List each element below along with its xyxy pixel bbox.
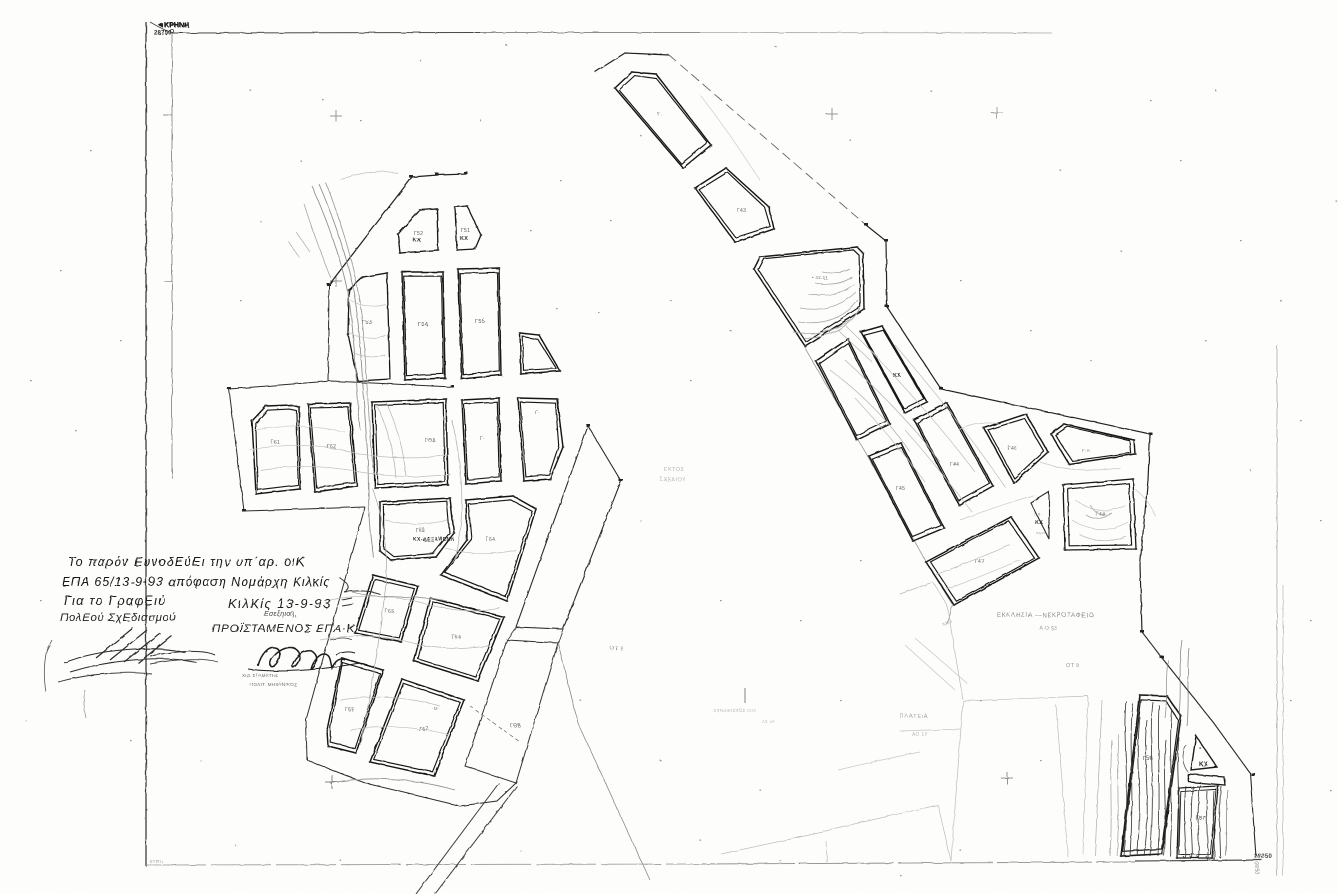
svg-text:Α Ο 93: Α Ο 93 bbox=[1040, 626, 1057, 632]
svg-text:Γ51: Γ51 bbox=[461, 228, 470, 234]
svg-text:Γ60: Γ60 bbox=[416, 528, 425, 534]
svg-text:ε≈π¹›: ε≈π¹› bbox=[150, 859, 163, 865]
svg-text:ΕΚΚΛΗΣΙΑ —ΝΕΚΡΟΤΑΦΕΙΟ: ΕΚΚΛΗΣΙΑ —ΝΕΚΡΟΤΑΦΕΙΟ bbox=[997, 613, 1094, 619]
svg-text:Γ61: Γ61 bbox=[271, 440, 280, 446]
svg-text:ΚΧ: ΚΧ bbox=[460, 236, 468, 242]
svg-text:Γ·Χ·: Γ·Χ· bbox=[1034, 512, 1043, 517]
svg-text:ΠΟΛΙΤ. ΜΗΧΑΝΙΚΟΣ: ΠΟΛΙΤ. ΜΗΧΑΝΙΚΟΣ bbox=[250, 682, 297, 687]
svg-text:• 42.11: • 42.11 bbox=[812, 275, 828, 280]
svg-text:Γ52: Γ52 bbox=[414, 231, 423, 237]
svg-text:●: ● bbox=[1199, 746, 1201, 750]
svg-text:ΟΤ 8: ΟΤ 8 bbox=[610, 646, 623, 652]
svg-text:ΠΡΟΪΣΤΑΜΕΝΟΣ ΕΠΑ·Κ: ΠΡΟΪΣΤΑΜΕΝΟΣ ΕΠΑ·Κ bbox=[212, 623, 356, 635]
svg-text:ΟΤ 9: ΟΤ 9 bbox=[1066, 663, 1079, 669]
svg-text:ΑΣ ΙΘ: ΑΣ ΙΘ bbox=[762, 719, 775, 724]
svg-text:Εσεξηιοη,: Εσεξηιοη, bbox=[264, 611, 297, 618]
svg-text:Γ·Α·: Γ·Α· bbox=[1082, 448, 1092, 453]
svg-text:ΕΠΑ 65/13-9-93 απόφαση Νομάρχη: ΕΠΑ 65/13-9-93 απόφαση Νομάρχη Κιλκίς bbox=[62, 575, 330, 589]
svg-text:Γ·: Γ· bbox=[657, 112, 662, 118]
svg-text:ΚΧ: ΚΧ bbox=[413, 238, 421, 244]
svg-text:ΓΘΒ: ΓΘΒ bbox=[510, 723, 521, 729]
svg-text:≈λ≈≈: ≈λ≈≈ bbox=[1036, 530, 1046, 535]
svg-text:ΓΘΑ: ΓΘΑ bbox=[425, 438, 436, 444]
svg-text:Γ46: Γ46 bbox=[1008, 446, 1017, 452]
svg-text:Γ66: Γ66 bbox=[345, 707, 354, 713]
svg-text:Γ·: Γ· bbox=[480, 436, 485, 442]
svg-text:28250: 28250 bbox=[1254, 854, 1273, 860]
svg-text:Γ43: Γ43 bbox=[737, 208, 746, 214]
svg-text:ΠΛΑΤΕΙΑ: ΠΛΑΤΕΙΑ bbox=[900, 714, 929, 720]
svg-text:ΕΚΤΟΣ: ΕΚΤΟΣ bbox=[664, 467, 685, 473]
svg-text:·Μ·: ·Μ· bbox=[432, 706, 440, 711]
svg-text:Γ45: Γ45 bbox=[896, 486, 905, 492]
svg-text:Γ47: Γ47 bbox=[975, 559, 984, 565]
svg-text:Γ65: Γ65 bbox=[385, 609, 394, 615]
svg-text:Γ53: Γ53 bbox=[362, 320, 372, 326]
svg-text:Το παρόν ΕυνοδΕύΕι την υπˊαρ.: Το παρόν ΕυνοδΕύΕι την υπˊαρ. οιΚ bbox=[68, 555, 306, 569]
svg-text:0580: 0580 bbox=[1255, 862, 1261, 874]
svg-text:ΧΙΡ. ΣΤΑΜΑΤΗΣ: ΧΙΡ. ΣΤΑΜΑΤΗΣ bbox=[242, 673, 278, 678]
svg-text:Γ64: Γ64 bbox=[452, 635, 461, 641]
svg-text:ΣΧΕΔΙΟΥ: ΣΧΕΔΙΟΥ bbox=[660, 477, 686, 483]
svg-text:Για το ΓραφΕιύ: Για το ΓραφΕιύ bbox=[64, 593, 167, 608]
svg-text:Γ57: Γ57 bbox=[1196, 816, 1206, 822]
svg-text:ΚΧ-ΔΕΞΑΜΕΝΗ: ΚΧ-ΔΕΞΑΜΕΝΗ bbox=[413, 537, 455, 543]
svg-text:Γ54: Γ54 bbox=[418, 322, 428, 328]
svg-text:Γ44: Γ44 bbox=[950, 462, 959, 468]
svg-text:Γ·: Γ· bbox=[535, 410, 540, 416]
svg-text:ΚιλΚίς 13-9-93: ΚιλΚίς 13-9-93 bbox=[228, 596, 332, 611]
svg-text:ΚΧ: ΚΧ bbox=[1035, 520, 1043, 526]
svg-text:ΑΟ 19: ΑΟ 19 bbox=[912, 732, 928, 738]
svg-text:ΠολΕού ΣχΕδιασμού: ΠολΕού ΣχΕδιασμού bbox=[60, 612, 176, 624]
svg-text:·ΣΥΝΟΙΚΙΣΜΟΣ ΟΤΑ: ·ΣΥΝΟΙΚΙΣΜΟΣ ΟΤΑ bbox=[712, 708, 756, 713]
svg-text:28750: 28750 bbox=[154, 31, 172, 37]
svg-text:Γ55: Γ55 bbox=[475, 319, 485, 325]
svg-text:Γ64: Γ64 bbox=[486, 537, 495, 543]
svg-text:ΚΧ: ΚΧ bbox=[1199, 762, 1208, 768]
